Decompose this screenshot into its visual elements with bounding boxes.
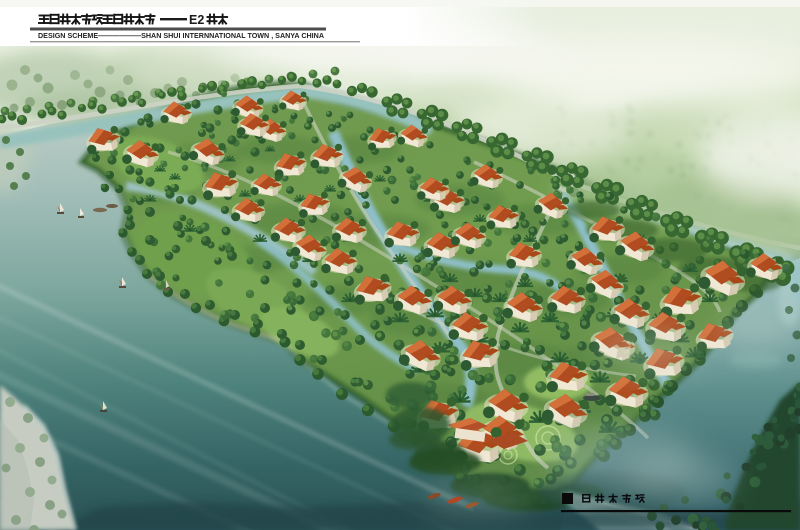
svg-text:E2: E2 bbox=[189, 13, 204, 27]
svg-text:DESIGN SCHEME——————SHAN SHUI I: DESIGN SCHEME——————SHAN SHUI INTERNNATIO… bbox=[38, 33, 324, 40]
